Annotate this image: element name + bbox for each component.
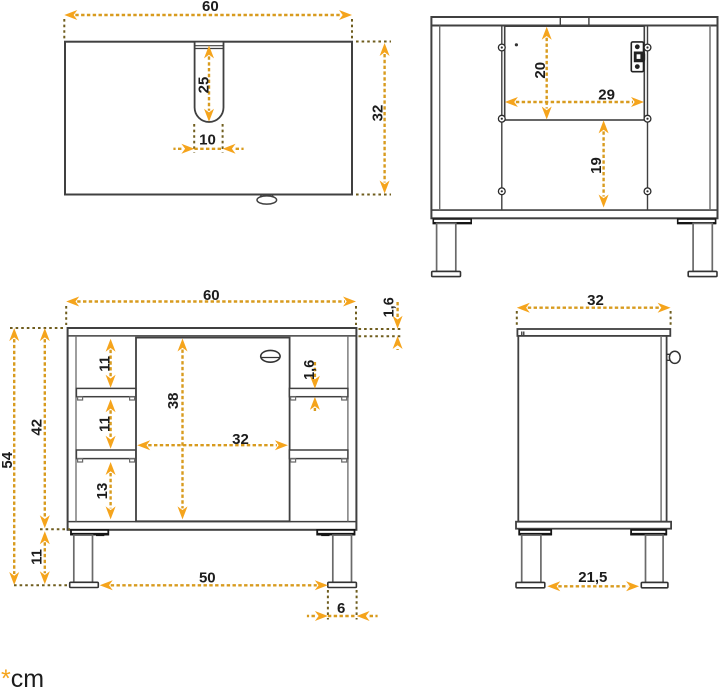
svg-text:32: 32 bbox=[587, 292, 604, 309]
svg-text:29: 29 bbox=[598, 86, 615, 103]
svg-text:11: 11 bbox=[28, 549, 45, 565]
svg-text:*cm: *cm bbox=[1, 665, 44, 688]
svg-text:32: 32 bbox=[370, 105, 387, 122]
svg-text:54: 54 bbox=[0, 451, 16, 468]
svg-text:10: 10 bbox=[199, 131, 216, 148]
svg-text:60: 60 bbox=[203, 287, 220, 304]
svg-text:42: 42 bbox=[28, 419, 45, 436]
svg-text:1,6: 1,6 bbox=[381, 297, 397, 317]
svg-text:60: 60 bbox=[202, 0, 219, 15]
svg-text:38: 38 bbox=[165, 392, 182, 409]
svg-text:21,5: 21,5 bbox=[578, 569, 607, 586]
svg-text:20: 20 bbox=[532, 62, 549, 79]
svg-text:25: 25 bbox=[195, 77, 212, 94]
svg-text:19: 19 bbox=[588, 157, 605, 174]
svg-text:50: 50 bbox=[199, 570, 216, 587]
svg-text:6: 6 bbox=[337, 600, 345, 617]
svg-text:32: 32 bbox=[232, 431, 249, 448]
svg-text:13: 13 bbox=[94, 483, 111, 500]
svg-text:11: 11 bbox=[96, 416, 113, 432]
svg-text:1,6: 1,6 bbox=[302, 360, 318, 380]
svg-text:11: 11 bbox=[96, 356, 113, 372]
